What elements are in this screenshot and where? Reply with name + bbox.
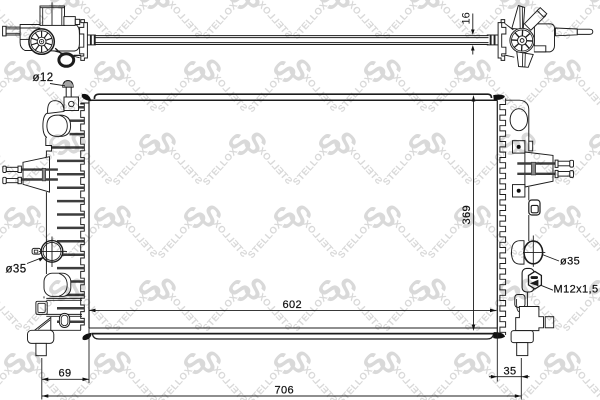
svg-text:STELLOX: STELLOX	[345, 291, 384, 333]
svg-text:STELLOX: STELLOX	[120, 364, 159, 400]
svg-text:706: 706	[275, 385, 295, 397]
svg-text:STELLOX: STELLOX	[435, 291, 474, 333]
svg-text:STELLOX: STELLOX	[165, 145, 204, 187]
svg-text:STELLOX: STELLOX	[120, 72, 159, 114]
svg-text:STELLOX: STELLOX	[570, 364, 600, 400]
svg-text:35: 35	[504, 366, 517, 378]
svg-text:STELLOX: STELLOX	[165, 291, 204, 333]
svg-text:STELLOX: STELLOX	[300, 218, 339, 260]
svg-text:69: 69	[59, 368, 72, 380]
svg-text:STELLOX: STELLOX	[570, 218, 600, 260]
svg-text:STELLOX: STELLOX	[255, 145, 294, 187]
svg-text:STELLOX: STELLOX	[390, 72, 429, 114]
svg-text:STELLOX: STELLOX	[210, 364, 249, 400]
svg-text:ø35: ø35	[6, 264, 27, 276]
svg-text:STELLOX: STELLOX	[255, 0, 294, 41]
svg-text:STELLOX: STELLOX	[300, 72, 339, 114]
svg-text:STELLOX: STELLOX	[120, 218, 159, 260]
svg-text:STELLOX: STELLOX	[390, 364, 429, 400]
svg-text:STELLOX: STELLOX	[210, 218, 249, 260]
svg-text:STELLOX: STELLOX	[345, 0, 384, 41]
svg-text:602: 602	[283, 299, 303, 311]
svg-text:STELLOX: STELLOX	[390, 218, 429, 260]
svg-text:STELLOX: STELLOX	[435, 145, 474, 187]
svg-text:STELLOX: STELLOX	[570, 72, 600, 114]
svg-text:STELLOX: STELLOX	[165, 0, 204, 41]
svg-text:STELLOX: STELLOX	[210, 72, 249, 114]
svg-text:STELLOX: STELLOX	[300, 364, 339, 400]
svg-text:STELLOX: STELLOX	[345, 145, 384, 187]
svg-text:ø35: ø35	[560, 256, 580, 268]
svg-text:STELLOX: STELLOX	[255, 291, 294, 333]
